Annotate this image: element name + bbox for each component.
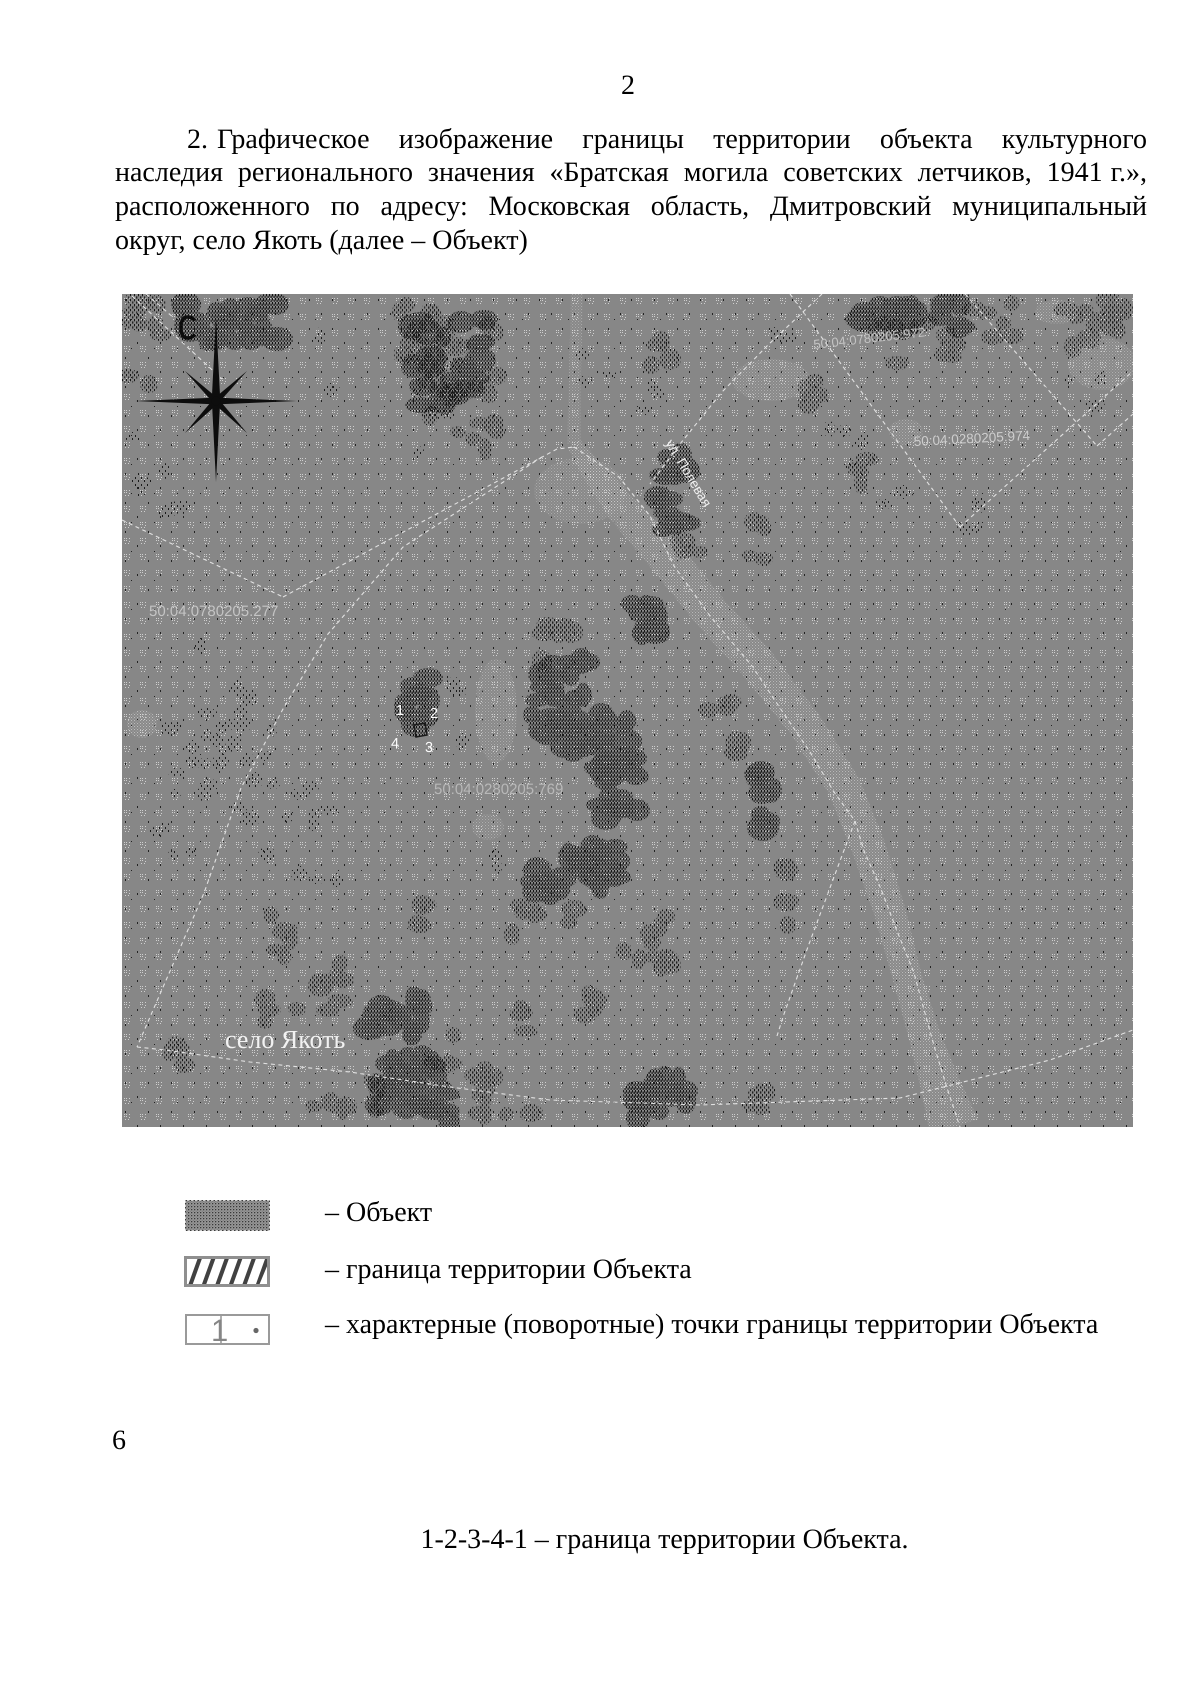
- svg-text:4: 4: [391, 736, 399, 752]
- svg-text:50:04:0280205:769: 50:04:0280205:769: [434, 781, 563, 798]
- svg-text:50:04:0780205.277: 50:04:0780205.277: [149, 603, 278, 620]
- svg-text:2: 2: [430, 706, 438, 722]
- svg-text:село Якоть: село Якоть: [225, 1025, 346, 1054]
- svg-text:1: 1: [396, 703, 404, 719]
- svg-text:3: 3: [425, 740, 433, 756]
- svg-text:1: 1: [211, 1314, 228, 1345]
